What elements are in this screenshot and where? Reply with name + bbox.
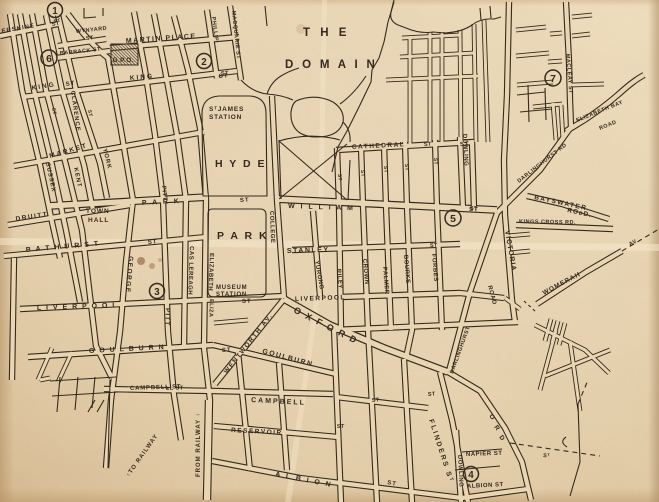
svg-text:ST: ST <box>222 347 232 353</box>
svg-text:FROM RAILWAY ↑: FROM RAILWAY ↑ <box>196 412 202 477</box>
svg-text:STATION: STATION <box>209 114 242 121</box>
svg-text:G.P.O.: G.P.O. <box>113 57 134 64</box>
svg-text:ST: ST <box>336 174 343 181</box>
svg-text:KINGS CROSS RD.: KINGS CROSS RD. <box>519 219 576 226</box>
svg-text:NAPIER ST: NAPIER ST <box>466 451 503 458</box>
svg-text:TOWN: TOWN <box>86 208 110 215</box>
svg-text:ST: ST <box>430 243 438 249</box>
svg-text:Sᵀ: Sᵀ <box>543 452 551 460</box>
svg-text:ST: ST <box>240 197 250 203</box>
svg-text:HALL: HALL <box>88 217 109 224</box>
svg-text:P A R K: P A R K <box>217 230 269 242</box>
svg-text:PITT: PITT <box>163 308 171 326</box>
svg-text:SᵀJAMES: SᵀJAMES <box>209 106 244 113</box>
svg-text:ST: ST <box>86 109 93 117</box>
svg-text:ST: ST <box>148 239 158 246</box>
svg-text:7: 7 <box>550 74 556 85</box>
svg-text:ST: ST <box>50 107 57 115</box>
svg-text:T H E: T H E <box>303 27 350 39</box>
svg-text:LL ST: LL ST <box>166 385 184 392</box>
svg-text:ST: ST <box>372 397 380 404</box>
svg-text:6: 6 <box>46 54 52 65</box>
svg-text:ST: ST <box>432 158 439 165</box>
svg-text:STANLEY: STANLEY <box>287 247 330 255</box>
svg-text:4: 4 <box>468 470 474 481</box>
svg-text:ST: ST <box>382 166 389 173</box>
svg-text:2: 2 <box>201 57 207 68</box>
svg-text:MUSEUM: MUSEUM <box>216 285 247 291</box>
svg-text:ST: ST <box>424 142 432 148</box>
svg-text:1: 1 <box>52 6 58 17</box>
svg-text:ST: ST <box>470 206 478 212</box>
svg-text:5: 5 <box>450 214 456 225</box>
svg-text:ST: ST <box>53 18 61 25</box>
svg-text:ST: ST <box>359 170 366 177</box>
svg-text:ST: ST <box>337 424 345 430</box>
svg-text:ST: ST <box>86 35 95 42</box>
svg-text:ST: ST <box>428 391 436 398</box>
svg-text:ST: ST <box>221 71 229 77</box>
svg-text:D O M A I N: D O M A I N <box>285 59 378 71</box>
svg-text:ELIZA: ELIZA <box>207 299 214 318</box>
svg-text:3: 3 <box>154 287 160 298</box>
svg-text:COLLEGE: COLLEGE <box>268 211 275 244</box>
svg-text:ST: ST <box>403 164 410 171</box>
svg-text:STATION: STATION <box>216 292 247 298</box>
svg-text:ST: ST <box>242 299 252 305</box>
svg-text:H Y D E: H Y D E <box>215 158 267 170</box>
